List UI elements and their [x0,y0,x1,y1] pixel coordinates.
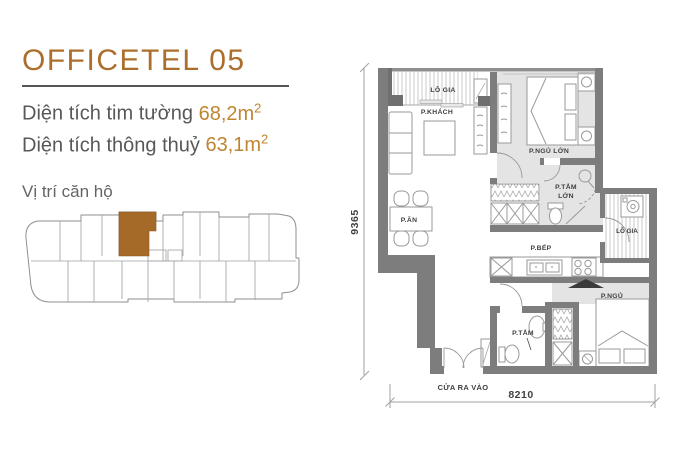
label-entrance: CỬA RA VÀO [438,383,489,392]
coffee-table [424,121,455,155]
tv-cabinet [474,79,487,154]
floor-plan: LÔ GIA P.KHÁCH P.NGỦ LỚN P.TẮM LỚN P.ĂN … [0,0,675,450]
kitchen-counter [490,257,603,277]
label-living: P.KHÁCH [421,107,453,116]
sofa [389,112,412,174]
label-master-bath-1: P.TẮM [555,182,577,191]
washing-machine [621,196,643,217]
label-kitchen: P.BẾP [530,242,551,252]
hall-closet [491,184,539,224]
label-bath2: P.TẮM [512,328,534,337]
label-dining: P.ĂN [401,215,418,224]
label-master-bath-2: LỚN [558,191,574,200]
label-balcony-right: LÔ GIA [616,226,638,235]
label-balcony-top: LÔ GIA [430,85,455,94]
bedroom2-bed [579,299,649,367]
label-bedroom2: P.NGỦ [601,291,623,300]
brochure-page: OFFICETEL 05 Diện tích tim tường 68,2m2 … [0,0,675,450]
dim-width: 8210 [508,389,533,401]
master-wardrobe [498,84,511,143]
bedroom2-closet [553,309,572,365]
label-master-bedroom: P.NGỦ LỚN [529,146,569,155]
dim-height: 9365 [349,209,361,234]
